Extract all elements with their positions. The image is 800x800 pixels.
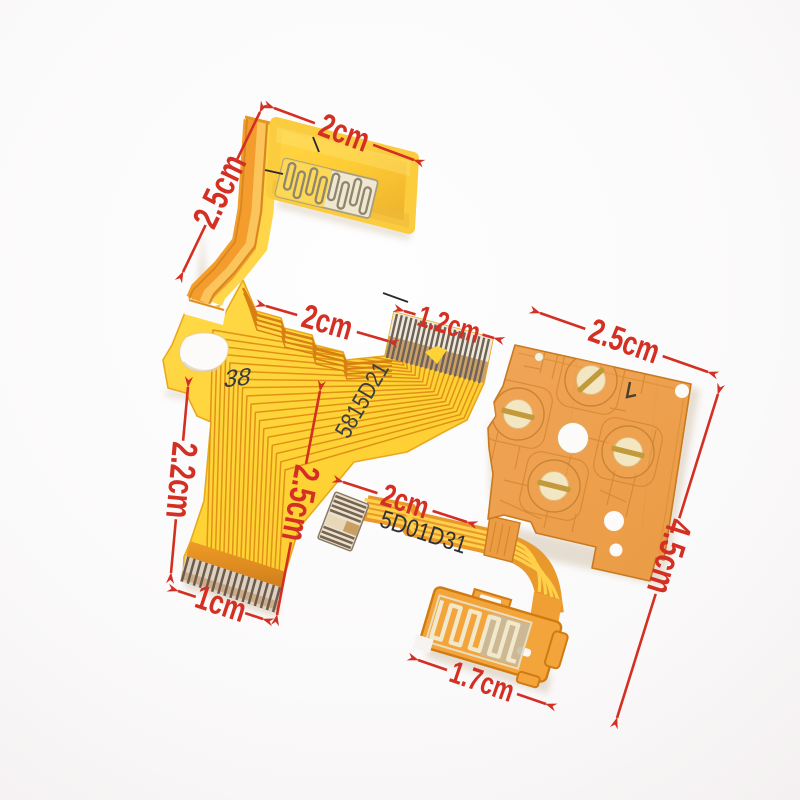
svg-text:2.2cm: 2.2cm xyxy=(158,440,205,520)
